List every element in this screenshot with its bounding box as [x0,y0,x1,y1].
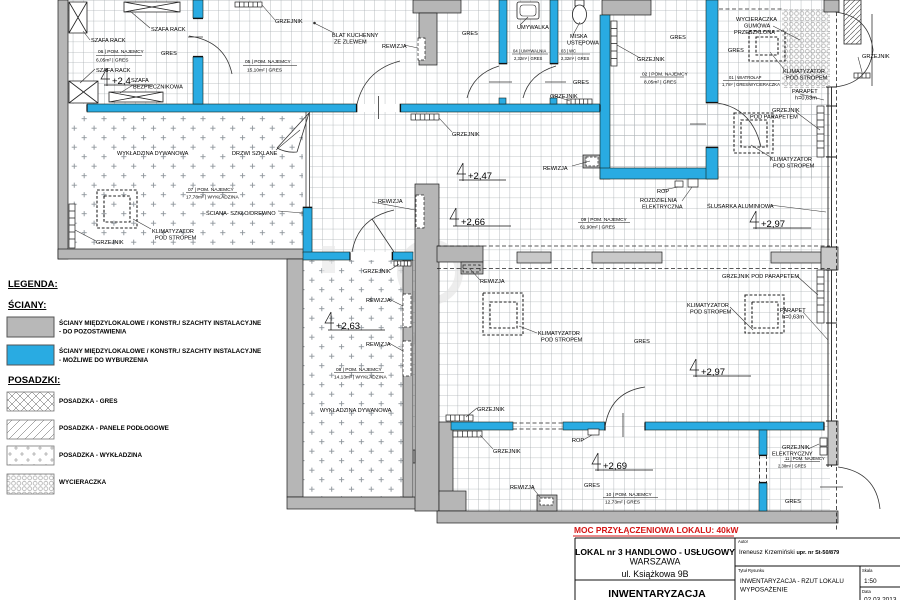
svg-text:SZAFA: SZAFA [131,78,149,84]
svg-text:17,78m² | WYKŁADZINA: 17,78m² | WYKŁADZINA [186,195,239,201]
svg-text:GRES: GRES [462,31,478,37]
svg-text:09 | POM. NAJEMCY: 09 | POM. NAJEMCY [581,217,628,223]
svg-text:SZAFA RACK: SZAFA RACK [91,38,126,44]
svg-text:REWIZJA: REWIZJA [382,44,407,50]
svg-text:ul. Książkowa 9B: ul. Książkowa 9B [622,569,689,579]
svg-text:WYPOSAŻENIE: WYPOSAŻENIE [740,585,788,594]
svg-text:Autor: Autor [738,539,749,544]
svg-text:USTĘPOWA: USTĘPOWA [567,41,599,47]
svg-text:REWIZJA: REWIZJA [366,298,391,304]
svg-text:KLIMATYZATOR: KLIMATYZATOR [687,303,729,309]
svg-text:GUMOWA: GUMOWA [744,24,770,30]
svg-text:LEGENDA:: LEGENDA: [8,279,58,290]
svg-text:BLAT KUCHENNY: BLAT KUCHENNY [332,33,379,39]
svg-text:POD PARAPETEM: POD PARAPETEM [750,115,798,121]
svg-text:REWIZJA: REWIZJA [510,485,535,491]
svg-text:POD STROPEM: POD STROPEM [155,236,197,242]
svg-text:POD STROPEM: POD STROPEM [773,164,815,170]
svg-text:ŚCIANY:: ŚCIANY: [8,299,46,311]
svg-text:POSADZKI:: POSADZKI: [8,375,60,386]
svg-text:ELEKTRYCZNY: ELEKTRYCZNY [772,452,813,458]
svg-text:POD STROPEM: POD STROPEM [690,310,732,316]
svg-text:03 | WC: 03 | WC [561,49,576,54]
svg-text:REWIZJA: REWIZJA [366,342,391,348]
svg-text:1:50: 1:50 [864,578,877,585]
svg-text:1,7m² | GRES/WYCIERACZKA: 1,7m² | GRES/WYCIERACZKA [722,82,780,87]
svg-text:WYCIERACZKA: WYCIERACZKA [736,17,777,23]
svg-text:GRZEJNIK: GRZEJNIK [363,269,391,275]
svg-text:GRZEJNIK: GRZEJNIK [96,240,124,246]
svg-text:Data: Data [862,589,872,594]
svg-text:WARSZAWA: WARSZAWA [630,557,681,567]
svg-text:GRZEJNIK: GRZEJNIK [452,132,480,138]
svg-text:01 | WIATROŁAP: 01 | WIATROŁAP [729,75,762,80]
svg-text:08 | POM. NAJEMCY: 08 | POM. NAJEMCY [336,367,383,373]
svg-text:SZAFA RACK: SZAFA RACK [96,68,131,74]
svg-text:REWIZJA: REWIZJA [480,279,505,285]
svg-text:+2,69: +2,69 [603,461,627,472]
svg-text:INWENTARYZACJA - RZUT LOKALU: INWENTARYZACJA - RZUT LOKALU [740,578,844,585]
svg-text:+2,66: +2,66 [461,217,485,228]
svg-text:2,32m² | GRES: 2,32m² | GRES [561,56,590,61]
svg-text:LOKAL nr 3 HANDLOWO - USŁUGOWY: LOKAL nr 3 HANDLOWO - USŁUGOWY [575,547,735,557]
svg-text:PARAPET: PARAPET [792,89,818,95]
svg-text:ŚLUSARKA ALUMINIOWA: ŚLUSARKA ALUMINIOWA [707,202,774,210]
svg-text:61,90m² | GRES: 61,90m² | GRES [580,225,615,231]
svg-text:- MOŻLIWE DO WYBURZENIA: - MOŻLIWE DO WYBURZENIA [59,356,149,364]
svg-text:GRES: GRES [728,48,744,54]
svg-text:+2,4: +2,4 [112,76,131,87]
svg-text:GRES: GRES [785,499,801,505]
svg-text:GRZEJNIK: GRZEJNIK [782,445,810,451]
svg-text:6,05m² | GRES: 6,05m² | GRES [96,58,128,64]
svg-text:GRES: GRES [584,483,600,489]
svg-text:GRZEJNIK POD PARAPETEM: GRZEJNIK POD PARAPETEM [722,274,799,280]
svg-text:h=0,63m: h=0,63m [782,315,804,321]
svg-text:REWIZJA: REWIZJA [543,166,568,172]
svg-text:MISKA: MISKA [570,34,588,40]
svg-text:02.03.2013: 02.03.2013 [864,597,897,600]
svg-text:05 | POM. NAJEMCY: 05 | POM. NAJEMCY [245,59,292,65]
svg-text:GRZEJNIK: GRZEJNIK [493,449,521,455]
svg-text:8,05m² | GRES: 8,05m² | GRES [644,80,676,86]
svg-text:PARAPET: PARAPET [780,308,806,314]
svg-text:ŚCIANY MIĘDZYLOKALOWE / KONSTR: ŚCIANY MIĘDZYLOKALOWE / KONSTR./ SZACHTY… [59,346,261,355]
svg-text:WYKŁADZINA DYWANOWA: WYKŁADZINA DYWANOWA [117,151,189,157]
svg-text:+2,47: +2,47 [468,171,492,182]
svg-text:POSADZKA - PANELE PODŁOGOWE: POSADZKA - PANELE PODŁOGOWE [59,425,169,432]
svg-text:06 | POM. NAJEMCY: 06 | POM. NAJEMCY [98,49,145,55]
svg-text:Ireneusz Krzemiński upr. nr St: Ireneusz Krzemiński upr. nr St-50/879 [739,549,839,556]
svg-text:2,32m² | GRES: 2,32m² | GRES [514,56,543,61]
svg-text:GRES: GRES [573,80,589,86]
svg-text:2,38m² | GRES: 2,38m² | GRES [778,464,807,469]
svg-text:GRZEJNIK: GRZEJNIK [275,19,303,25]
svg-text:04 | UMYWALNIA: 04 | UMYWALNIA [513,49,546,54]
svg-text:POD STROPEM: POD STROPEM [541,338,583,344]
svg-text:ZE ZLEWEM: ZE ZLEWEM [334,40,367,46]
svg-text:10 | POM. NAJEMCY: 10 | POM. NAJEMCY [606,492,653,498]
svg-text:Tytuł Rysunku: Tytuł Rysunku [738,568,765,573]
svg-text:+2,97: +2,97 [761,219,785,230]
svg-text:SZAFA RACK: SZAFA RACK [151,27,186,33]
svg-text:ROZDZIELNIA: ROZDZIELNIA [640,198,677,204]
svg-text:14,13m² | WYKŁADZINA: 14,13m² | WYKŁADZINA [334,375,387,381]
svg-text:KLIMATYZATOR: KLIMATYZATOR [152,229,194,235]
svg-text:POSADZKA - WYKŁADZINA: POSADZKA - WYKŁADZINA [59,452,142,459]
svg-text:15,10m² | GRES: 15,10m² | GRES [247,68,282,74]
svg-text:UMYWALKA: UMYWALKA [517,25,549,31]
svg-text:ŚCIANY MIĘDZYLOKALOWE / KONSTR: ŚCIANY MIĘDZYLOKALOWE / KONSTR./ SZACHTY… [59,318,261,327]
svg-text:INWENTARYZACJA: INWENTARYZACJA [608,588,706,600]
svg-text:MOC PRZYŁĄCZENIOWA LOKALU: 40k: MOC PRZYŁĄCZENIOWA LOKALU: 40kW [574,525,738,535]
svg-text:POSADZKA - GRES: POSADZKA - GRES [59,398,118,405]
svg-text:h=0,63m: h=0,63m [795,96,817,102]
svg-text:+2,63: +2,63 [336,321,360,332]
svg-text:07 | POM. NAJEMCY: 07 | POM. NAJEMCY [188,187,235,193]
svg-text:GRZEJNIK: GRZEJNIK [637,57,665,63]
svg-text:GRZEJNIK: GRZEJNIK [862,54,890,60]
svg-text:KLIMATYZATOR: KLIMATYZATOR [538,331,580,337]
svg-text:ELEKTRYCZNA: ELEKTRYCZNA [642,205,683,211]
svg-text:WYCIERACZKA: WYCIERACZKA [59,479,107,486]
svg-text:02 | POM. NAJEMCY: 02 | POM. NAJEMCY [642,72,689,78]
svg-text:GRZEJNIK: GRZEJNIK [550,94,578,100]
svg-text:DRZWI SZKLANE: DRZWI SZKLANE [232,151,278,157]
svg-text:BEZPIECZNIKOWA: BEZPIECZNIKOWA [133,85,183,91]
svg-text:GRES: GRES [634,339,650,345]
svg-text:GRES: GRES [670,35,686,41]
svg-text:PRZESZKLONA: PRZESZKLONA [734,30,775,36]
svg-text:ROP: ROP [572,438,584,444]
svg-text:ŚCIANA- SZKŁO/DREWNO: ŚCIANA- SZKŁO/DREWNO [206,209,276,217]
svg-text:GRZEJNIK: GRZEJNIK [772,108,800,114]
svg-text:Skala: Skala [862,568,873,573]
svg-text:+2,97: +2,97 [701,367,725,378]
svg-text:KLIMATYZATOR: KLIMATYZATOR [770,157,812,163]
svg-text:POD STROPEM: POD STROPEM [786,76,828,82]
svg-text:GRZEJNIK: GRZEJNIK [477,407,505,413]
svg-text:ROP: ROP [657,189,669,195]
svg-text:- DO POZOSTAWIENIA: - DO POZOSTAWIENIA [59,329,127,336]
svg-text:KLIMATYZATOR: KLIMATYZATOR [783,69,825,75]
svg-text:12,73m² | GRES: 12,73m² | GRES [605,500,640,506]
svg-text:REWIZJA: REWIZJA [378,199,403,205]
svg-text:GRES: GRES [161,51,177,57]
svg-text:WYKŁADZINA DYWANOWA: WYKŁADZINA DYWANOWA [320,408,392,414]
